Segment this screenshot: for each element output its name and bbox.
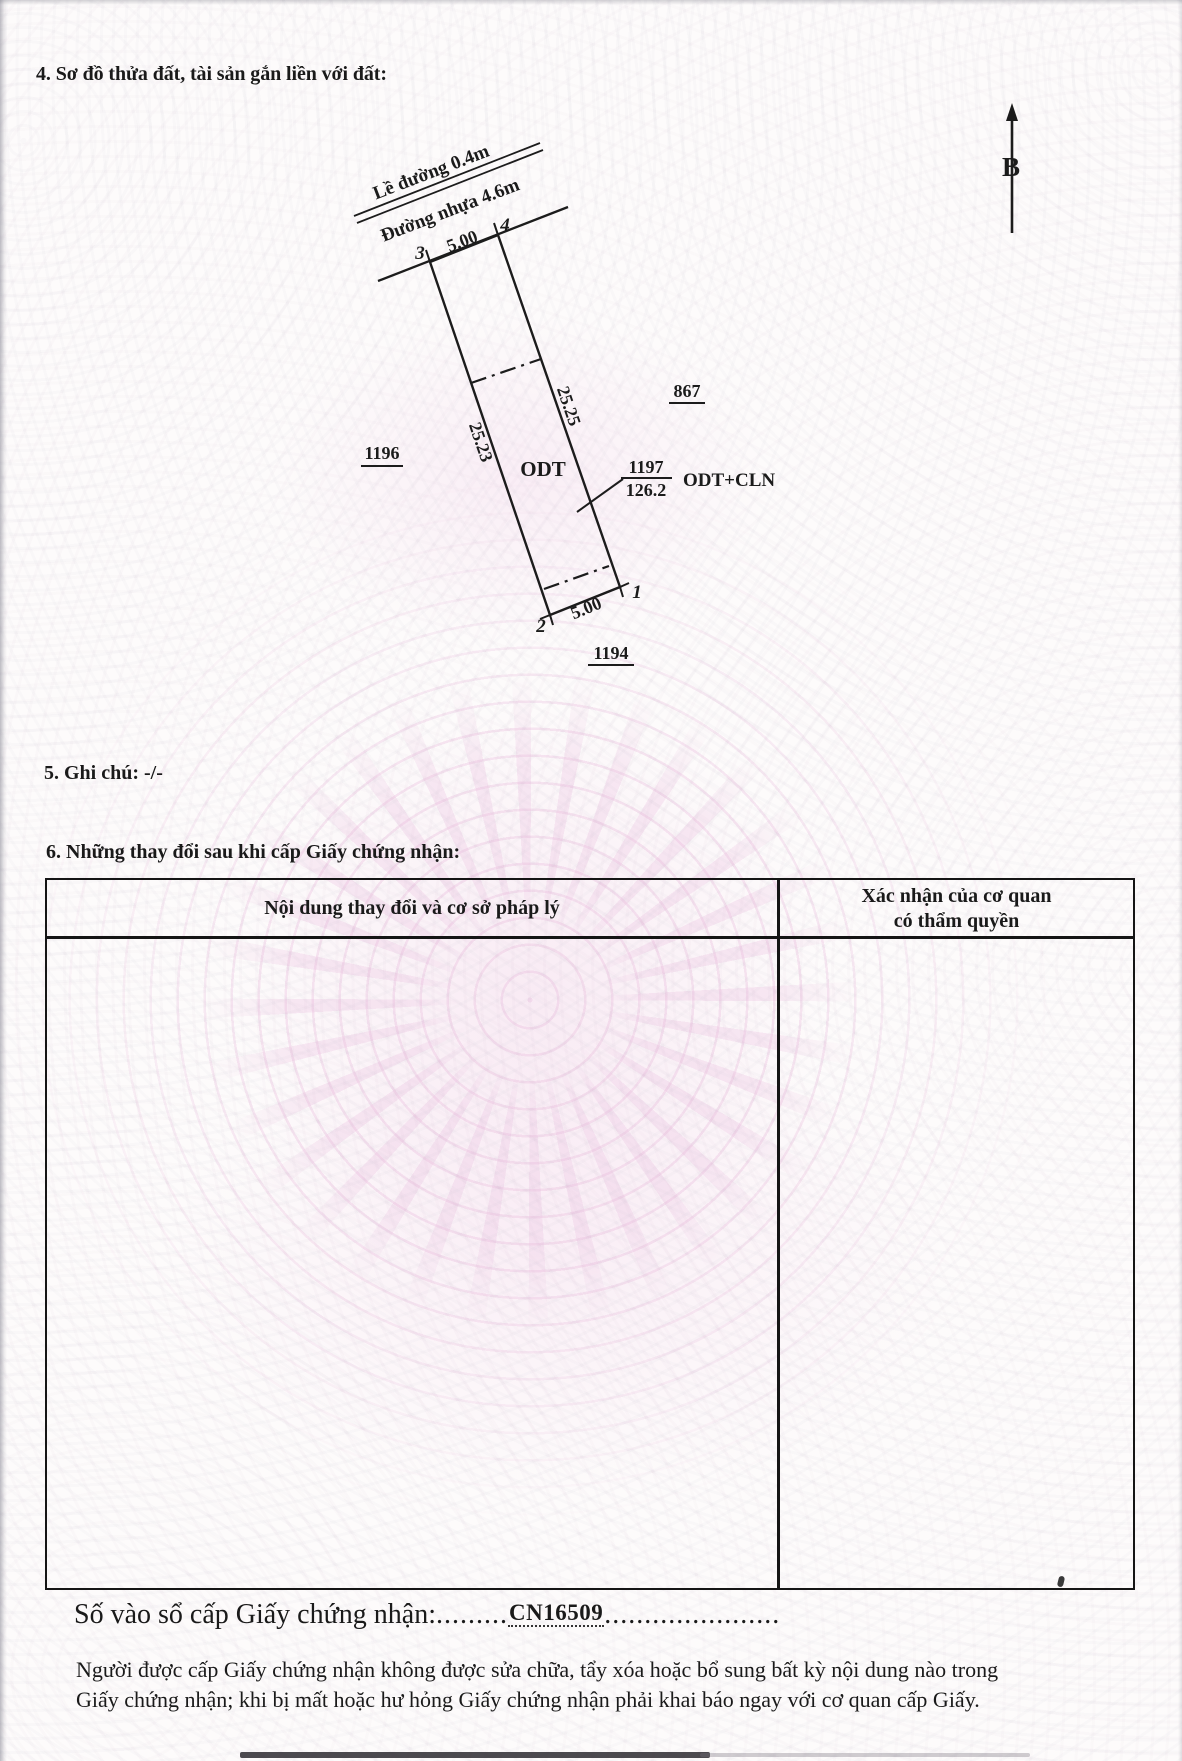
tick-corner-1b	[620, 583, 629, 587]
tick-corner-2a	[550, 615, 553, 625]
adjacent-left-label: 1196	[364, 443, 399, 463]
corner-3-label: 3	[414, 243, 425, 264]
corner-4-label: 4	[499, 215, 510, 236]
table-header-separator	[47, 936, 1133, 939]
registry-dots-after: ......................	[604, 1599, 780, 1630]
corner-2-label: 2	[535, 616, 546, 637]
land-use-label: ODT	[520, 457, 566, 481]
table-col2-header: Xác nhận của cơ quan có thẩm quyền	[780, 884, 1133, 934]
table-col2-header-line2: có thẩm quyền	[780, 909, 1133, 934]
registry-number-line: Số vào sổ cấp Giấy chứng nhận:.........C…	[74, 1599, 780, 1631]
footer-line1: Người được cấp Giấy chứng nhận không đượ…	[76, 1655, 1126, 1685]
bottom-width-label: 5.00	[568, 593, 605, 623]
registry-dots-before: .........	[436, 1599, 508, 1630]
tick-corner-1a	[620, 587, 623, 597]
registry-number-value: CN16509	[508, 1600, 604, 1627]
adjacent-right-label: 867	[674, 381, 701, 401]
divider-dashdot-lower	[544, 566, 609, 589]
adjacent-bottom-label: 1194	[593, 643, 628, 663]
table-col2-header-line1: Xác nhận của cơ quan	[780, 884, 1133, 909]
footer-line2: Giấy chứng nhận; khi bị mất hoặc hư hỏng…	[76, 1685, 1126, 1715]
left-length-label: 25.23	[465, 420, 497, 465]
table-col1-header: Nội dung thay đổi và cơ sở pháp lý	[47, 880, 777, 936]
parcel-number-label: 1197	[628, 457, 663, 477]
footer-notice: Người được cấp Giấy chứng nhận không đượ…	[76, 1655, 1126, 1715]
parcel-area-label: 126.2	[626, 480, 667, 500]
tick-corner-4	[494, 223, 498, 235]
top-width-label: 5.00	[444, 226, 481, 256]
north-label: B	[1002, 152, 1020, 182]
parcel-use-label: ODT+CLN	[683, 470, 775, 491]
divider-dashdot-upper	[471, 359, 541, 383]
changes-table: Nội dung thay đổi và cơ sở pháp lý Xác n…	[45, 878, 1135, 1590]
parcel-boundary	[430, 235, 620, 615]
registry-label: Số vào sổ cấp Giấy chứng nhận:	[74, 1599, 436, 1630]
corner-1-label: 1	[632, 582, 642, 603]
certificate-page: 4. Sơ đồ thửa đất, tài sản gắn liền với …	[0, 0, 1182, 1761]
north-arrow-head	[1006, 103, 1018, 121]
tick-corner-3	[426, 250, 430, 262]
table-column-divider	[777, 880, 780, 1588]
